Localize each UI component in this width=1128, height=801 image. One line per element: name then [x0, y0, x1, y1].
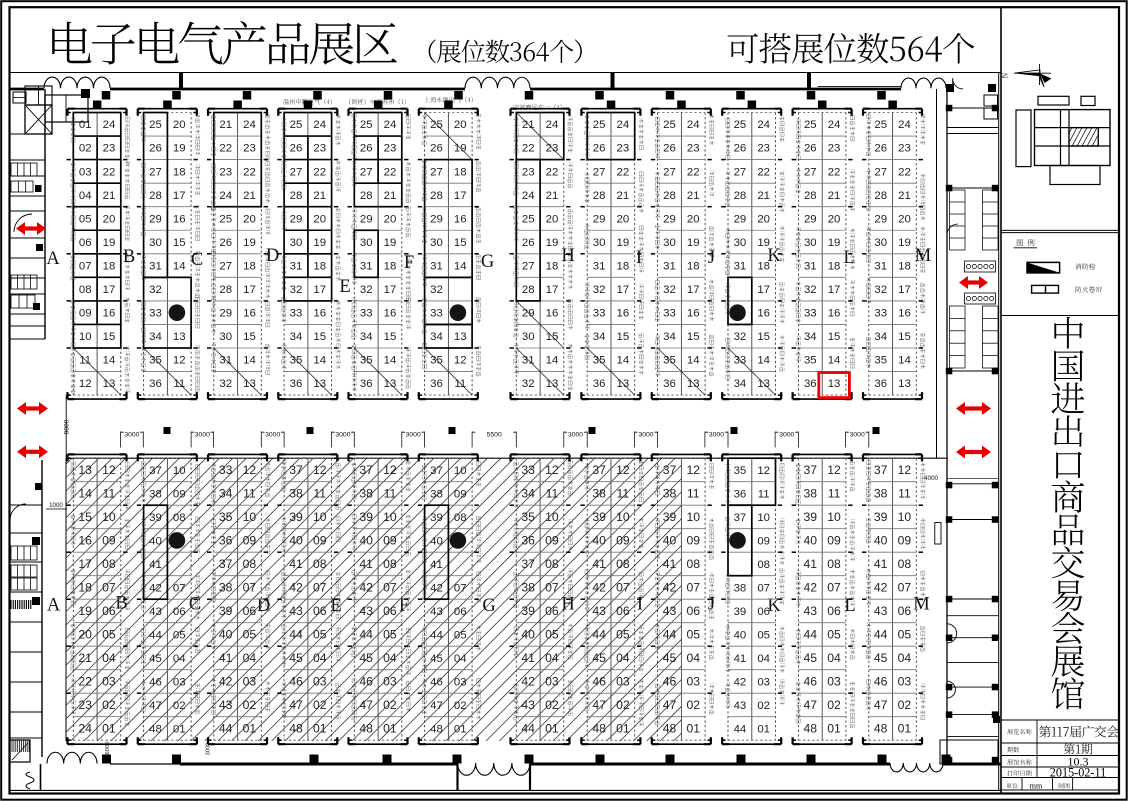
svg-text:27: 27: [522, 260, 535, 272]
svg-text:34: 34: [663, 331, 676, 343]
svg-text:44: 44: [149, 629, 162, 641]
svg-text:19: 19: [828, 237, 841, 249]
svg-text:12: 12: [173, 355, 186, 367]
svg-text:48: 48: [592, 721, 606, 735]
svg-text:A: A: [46, 249, 60, 269]
svg-text:08: 08: [243, 557, 257, 571]
svg-text:20: 20: [454, 119, 467, 131]
svg-text:21: 21: [617, 190, 630, 202]
svg-text:27: 27: [360, 166, 373, 178]
svg-text:42: 42: [734, 676, 747, 688]
svg-text:04: 04: [454, 653, 467, 665]
svg-text:46: 46: [874, 674, 888, 688]
svg-text:37: 37: [874, 463, 888, 477]
svg-text:28: 28: [430, 190, 443, 202]
svg-text:17: 17: [78, 557, 92, 571]
svg-text:02: 02: [102, 698, 116, 712]
svg-text:29: 29: [804, 213, 817, 225]
svg-text:mm: mm: [1030, 781, 1043, 790]
svg-text:01: 01: [79, 119, 92, 131]
svg-text:27: 27: [593, 166, 606, 178]
svg-text:23: 23: [546, 143, 559, 155]
svg-text:05: 05: [827, 627, 841, 641]
svg-text:35: 35: [360, 355, 373, 367]
svg-text:32: 32: [219, 378, 232, 390]
svg-text:3000: 3000: [195, 432, 210, 439]
svg-text:31: 31: [219, 355, 232, 367]
svg-text:24: 24: [243, 119, 256, 131]
svg-text:24: 24: [384, 119, 397, 131]
svg-text:30: 30: [804, 237, 817, 249]
svg-text:28: 28: [219, 284, 232, 296]
svg-text:22: 22: [546, 166, 559, 178]
svg-text:07: 07: [313, 580, 327, 594]
svg-text:25: 25: [734, 119, 747, 131]
svg-text:23: 23: [219, 166, 232, 178]
svg-text:15: 15: [78, 510, 92, 524]
svg-text:08: 08: [827, 557, 841, 571]
svg-text:24: 24: [522, 190, 535, 202]
svg-text:06: 06: [757, 606, 770, 618]
svg-text:11: 11: [758, 488, 770, 500]
svg-text:20: 20: [103, 213, 116, 225]
svg-text:46: 46: [430, 676, 443, 688]
svg-text:3000: 3000: [850, 432, 865, 439]
svg-text:05: 05: [616, 627, 630, 641]
svg-text:35: 35: [521, 510, 535, 524]
svg-text:42: 42: [359, 580, 373, 594]
svg-text:29: 29: [593, 213, 606, 225]
svg-text:26: 26: [593, 143, 606, 155]
svg-text:06: 06: [102, 604, 116, 618]
svg-text:22: 22: [687, 166, 700, 178]
svg-text:43: 43: [592, 604, 606, 618]
svg-text:03: 03: [545, 674, 559, 688]
svg-text:21: 21: [78, 651, 92, 665]
svg-text:18: 18: [384, 260, 397, 272]
svg-text:12: 12: [383, 463, 397, 477]
svg-text:42: 42: [804, 580, 818, 594]
svg-text:23: 23: [103, 143, 116, 155]
svg-text:23: 23: [757, 143, 770, 155]
svg-text:28: 28: [734, 190, 747, 202]
svg-text:26: 26: [663, 143, 676, 155]
svg-text:02: 02: [313, 698, 327, 712]
svg-text:46: 46: [359, 674, 373, 688]
svg-text:42: 42: [289, 580, 303, 594]
svg-text:30: 30: [219, 331, 232, 343]
svg-text:02: 02: [243, 698, 257, 712]
svg-text:21: 21: [243, 190, 256, 202]
svg-text:03: 03: [243, 674, 257, 688]
svg-text:17: 17: [173, 190, 186, 202]
svg-text:05: 05: [313, 627, 327, 641]
svg-text:06: 06: [827, 604, 841, 618]
svg-text:3000: 3000: [335, 432, 350, 439]
svg-text:09: 09: [898, 533, 912, 547]
svg-text:11: 11: [687, 486, 700, 500]
svg-text:40: 40: [289, 533, 303, 547]
svg-text:26: 26: [874, 143, 887, 155]
svg-text:15: 15: [454, 237, 467, 249]
svg-text:39: 39: [734, 606, 747, 618]
svg-text:39: 39: [874, 510, 888, 524]
svg-text:24: 24: [546, 119, 559, 131]
svg-text:09: 09: [243, 533, 257, 547]
svg-text:15: 15: [757, 331, 770, 343]
svg-text:27: 27: [290, 166, 303, 178]
svg-text:45: 45: [663, 651, 677, 665]
svg-text:08: 08: [102, 557, 116, 571]
svg-text:29: 29: [874, 213, 887, 225]
svg-text:34: 34: [734, 378, 747, 390]
svg-text:02: 02: [383, 698, 397, 712]
svg-text:25: 25: [593, 119, 606, 131]
svg-text:06: 06: [616, 604, 630, 618]
svg-text:23: 23: [78, 698, 92, 712]
svg-text:30: 30: [430, 237, 443, 249]
svg-text:02: 02: [827, 698, 841, 712]
svg-text:22: 22: [898, 166, 911, 178]
svg-text:24: 24: [103, 119, 116, 131]
svg-text:23: 23: [898, 143, 911, 155]
svg-text:15: 15: [243, 331, 256, 343]
svg-text:27: 27: [663, 166, 676, 178]
svg-text:43: 43: [663, 604, 677, 618]
svg-text:05: 05: [383, 627, 397, 641]
svg-text:07: 07: [545, 580, 559, 594]
svg-text:16: 16: [78, 533, 92, 547]
svg-text:35: 35: [290, 355, 303, 367]
svg-text:17: 17: [757, 284, 770, 296]
svg-text:A: A: [47, 596, 61, 616]
svg-text:08: 08: [616, 557, 630, 571]
svg-text:36: 36: [430, 378, 443, 390]
svg-text:08: 08: [757, 559, 770, 571]
svg-text:33: 33: [430, 308, 443, 320]
svg-text:05: 05: [454, 629, 467, 641]
svg-text:09: 09: [686, 533, 700, 547]
svg-text:15: 15: [313, 331, 326, 343]
svg-text:11: 11: [384, 486, 397, 500]
svg-text:05: 05: [243, 627, 257, 641]
svg-text:40: 40: [521, 627, 535, 641]
svg-text:02: 02: [454, 700, 467, 712]
svg-text:19: 19: [243, 237, 256, 249]
svg-text:37: 37: [430, 465, 443, 477]
svg-text:06: 06: [243, 604, 257, 618]
svg-text:41: 41: [874, 557, 888, 571]
svg-text:46: 46: [289, 674, 303, 688]
svg-text:40: 40: [430, 535, 443, 547]
svg-text:23: 23: [617, 143, 630, 155]
svg-text:28: 28: [593, 190, 606, 202]
svg-text:12: 12: [616, 463, 630, 477]
svg-text:11: 11: [103, 486, 116, 500]
svg-text:39: 39: [219, 604, 233, 618]
svg-text:38: 38: [359, 486, 373, 500]
svg-text:21: 21: [757, 190, 770, 202]
svg-text:26: 26: [219, 237, 232, 249]
svg-text:22: 22: [522, 143, 535, 155]
svg-text:13: 13: [828, 378, 841, 390]
svg-text:08: 08: [686, 557, 700, 571]
svg-text:44: 44: [874, 627, 888, 641]
svg-text:11: 11: [173, 378, 185, 390]
svg-text:14: 14: [617, 355, 630, 367]
svg-text:11: 11: [313, 486, 326, 500]
svg-text:01: 01: [243, 721, 257, 735]
svg-text:15: 15: [687, 331, 700, 343]
svg-text:37: 37: [521, 557, 535, 571]
svg-text:39: 39: [663, 510, 677, 524]
svg-text:18: 18: [243, 260, 256, 272]
svg-text:31: 31: [593, 260, 606, 272]
svg-text:09: 09: [79, 308, 92, 320]
svg-text:31: 31: [804, 260, 817, 272]
svg-text:33: 33: [521, 463, 535, 477]
svg-text:01: 01: [757, 723, 770, 735]
svg-text:01: 01: [898, 721, 912, 735]
svg-text:19: 19: [313, 237, 326, 249]
svg-text:35: 35: [593, 355, 606, 367]
svg-text:20: 20: [828, 213, 841, 225]
svg-text:11: 11: [243, 486, 256, 500]
svg-text:38: 38: [521, 580, 535, 594]
svg-text:29: 29: [663, 213, 676, 225]
svg-text:09: 09: [313, 533, 327, 547]
svg-text:28: 28: [522, 284, 535, 296]
svg-text:45: 45: [289, 651, 303, 665]
svg-text:03: 03: [79, 166, 92, 178]
svg-text:10: 10: [686, 510, 700, 524]
svg-text:21: 21: [219, 119, 232, 131]
svg-text:11: 11: [79, 355, 91, 367]
svg-text:33: 33: [734, 355, 747, 367]
svg-text:17: 17: [617, 284, 630, 296]
svg-text:36: 36: [149, 378, 162, 390]
svg-text:03: 03: [313, 674, 327, 688]
svg-text:11: 11: [454, 378, 466, 390]
svg-text:04: 04: [243, 651, 257, 665]
svg-text:20: 20: [617, 213, 630, 225]
svg-text:25: 25: [663, 119, 676, 131]
svg-text:03: 03: [827, 674, 841, 688]
svg-text:24: 24: [898, 119, 911, 131]
svg-text:13: 13: [173, 331, 186, 343]
svg-text:12: 12: [313, 463, 327, 477]
svg-text:07: 07: [616, 580, 630, 594]
svg-text:18: 18: [546, 260, 559, 272]
svg-text:34: 34: [290, 331, 303, 343]
svg-text:43: 43: [734, 700, 747, 712]
svg-text:35: 35: [663, 355, 676, 367]
svg-text:E: E: [339, 277, 350, 297]
svg-text:16: 16: [454, 213, 467, 225]
svg-text:12: 12: [898, 463, 912, 477]
svg-text:M: M: [915, 246, 931, 266]
svg-text:42: 42: [592, 580, 606, 594]
svg-text:17: 17: [384, 284, 397, 296]
svg-text:05: 05: [686, 627, 700, 641]
svg-text:44: 44: [734, 723, 747, 735]
svg-text:C: C: [191, 250, 203, 270]
svg-text:03: 03: [757, 676, 770, 688]
svg-text:19: 19: [546, 237, 559, 249]
svg-text:07: 07: [243, 580, 257, 594]
svg-text:18: 18: [173, 166, 186, 178]
svg-text:20: 20: [78, 627, 92, 641]
svg-text:01: 01: [827, 721, 841, 735]
svg-text:22: 22: [384, 166, 397, 178]
svg-text:25: 25: [290, 119, 303, 131]
svg-text:12: 12: [243, 463, 257, 477]
svg-text:14: 14: [828, 355, 841, 367]
svg-text:15: 15: [828, 331, 841, 343]
svg-text:15: 15: [617, 331, 630, 343]
svg-text:09: 09: [827, 533, 841, 547]
svg-text:29: 29: [734, 213, 747, 225]
svg-text:43: 43: [149, 606, 162, 618]
svg-text:3000: 3000: [265, 432, 280, 439]
svg-text:36: 36: [219, 533, 233, 547]
svg-text:03: 03: [686, 674, 700, 688]
svg-text:21: 21: [103, 190, 116, 202]
svg-text:40: 40: [804, 533, 818, 547]
svg-text:11: 11: [546, 486, 559, 500]
svg-text:31: 31: [522, 355, 535, 367]
svg-text:25: 25: [430, 119, 443, 131]
svg-text:01: 01: [383, 721, 397, 735]
svg-text:22: 22: [617, 166, 630, 178]
svg-text:37: 37: [734, 512, 747, 524]
svg-text:43: 43: [874, 604, 888, 618]
svg-text:43: 43: [430, 606, 443, 618]
svg-text:36: 36: [290, 378, 303, 390]
svg-text:06: 06: [313, 604, 327, 618]
svg-text:14: 14: [384, 355, 397, 367]
svg-text:41: 41: [734, 653, 747, 665]
svg-text:38: 38: [430, 488, 443, 500]
svg-text:3000: 3000: [779, 432, 794, 439]
svg-text:32: 32: [522, 378, 535, 390]
svg-text:12: 12: [102, 463, 116, 477]
svg-text:31: 31: [149, 260, 162, 272]
svg-text:35: 35: [149, 355, 162, 367]
svg-text:26: 26: [522, 237, 535, 249]
svg-text:J: J: [708, 595, 715, 615]
svg-text:44: 44: [592, 627, 606, 641]
svg-text:4000: 4000: [924, 475, 939, 482]
svg-text:04: 04: [545, 651, 559, 665]
svg-text:08: 08: [79, 284, 92, 296]
svg-text:17: 17: [898, 284, 911, 296]
svg-text:04: 04: [616, 651, 630, 665]
svg-text:04: 04: [79, 190, 92, 202]
svg-text:48: 48: [359, 721, 373, 735]
svg-text:10: 10: [545, 510, 559, 524]
svg-text:41: 41: [592, 557, 606, 571]
svg-text:02: 02: [686, 698, 700, 712]
svg-text:09: 09: [383, 533, 397, 547]
svg-text:06: 06: [686, 604, 700, 618]
svg-text:07: 07: [79, 260, 92, 272]
svg-text:47: 47: [430, 700, 443, 712]
svg-text:26: 26: [430, 143, 443, 155]
svg-text:32: 32: [430, 284, 443, 296]
svg-text:10: 10: [102, 510, 116, 524]
svg-text:15: 15: [173, 237, 186, 249]
svg-text:42: 42: [149, 582, 162, 594]
svg-text:02: 02: [79, 143, 92, 155]
svg-text:38: 38: [734, 582, 747, 594]
svg-text:48: 48: [149, 723, 162, 735]
svg-text:41: 41: [219, 651, 233, 665]
svg-text:01: 01: [454, 723, 467, 735]
svg-text:31: 31: [290, 260, 303, 272]
svg-text:07: 07: [102, 580, 116, 594]
svg-text:36: 36: [360, 378, 373, 390]
svg-text:45: 45: [430, 653, 443, 665]
svg-text:09: 09: [173, 488, 186, 500]
svg-text:47: 47: [663, 698, 677, 712]
svg-text:3000: 3000: [568, 432, 583, 439]
svg-text:09: 09: [102, 533, 116, 547]
svg-text:34: 34: [804, 331, 817, 343]
svg-text:08: 08: [313, 557, 327, 571]
svg-text:01: 01: [102, 721, 116, 735]
svg-text:27: 27: [874, 166, 887, 178]
svg-text:13: 13: [617, 378, 630, 390]
svg-text:17: 17: [103, 284, 116, 296]
svg-text:31: 31: [430, 260, 443, 272]
svg-text:34: 34: [593, 331, 606, 343]
svg-text:14: 14: [546, 355, 559, 367]
svg-text:14: 14: [687, 355, 700, 367]
svg-text:19: 19: [898, 237, 911, 249]
svg-text:21: 21: [828, 190, 841, 202]
svg-text:33: 33: [593, 308, 606, 320]
svg-text:46: 46: [592, 674, 606, 688]
svg-text:09: 09: [757, 535, 770, 547]
svg-text:M: M: [913, 595, 929, 615]
svg-text:06: 06: [383, 604, 397, 618]
svg-text:40: 40: [874, 533, 888, 547]
svg-text:08: 08: [545, 557, 559, 571]
svg-text:04: 04: [686, 651, 700, 665]
svg-text:06: 06: [79, 237, 92, 249]
svg-text:27: 27: [804, 166, 817, 178]
svg-text:04: 04: [173, 653, 186, 665]
svg-text:18: 18: [454, 166, 467, 178]
svg-text:16: 16: [313, 308, 326, 320]
svg-text:03: 03: [102, 674, 116, 688]
svg-text:18: 18: [313, 260, 326, 272]
svg-text:44: 44: [289, 627, 303, 641]
svg-text:26: 26: [804, 143, 817, 155]
svg-text:24: 24: [687, 119, 700, 131]
svg-text:26: 26: [290, 143, 303, 155]
svg-text:34: 34: [430, 331, 443, 343]
svg-text:20: 20: [173, 119, 186, 131]
svg-text:16: 16: [687, 308, 700, 320]
svg-text:33: 33: [663, 308, 676, 320]
svg-text:41: 41: [521, 651, 535, 665]
svg-text:48: 48: [804, 721, 818, 735]
svg-text:20: 20: [546, 213, 559, 225]
svg-text:04: 04: [898, 651, 912, 665]
svg-text:11: 11: [828, 486, 841, 500]
